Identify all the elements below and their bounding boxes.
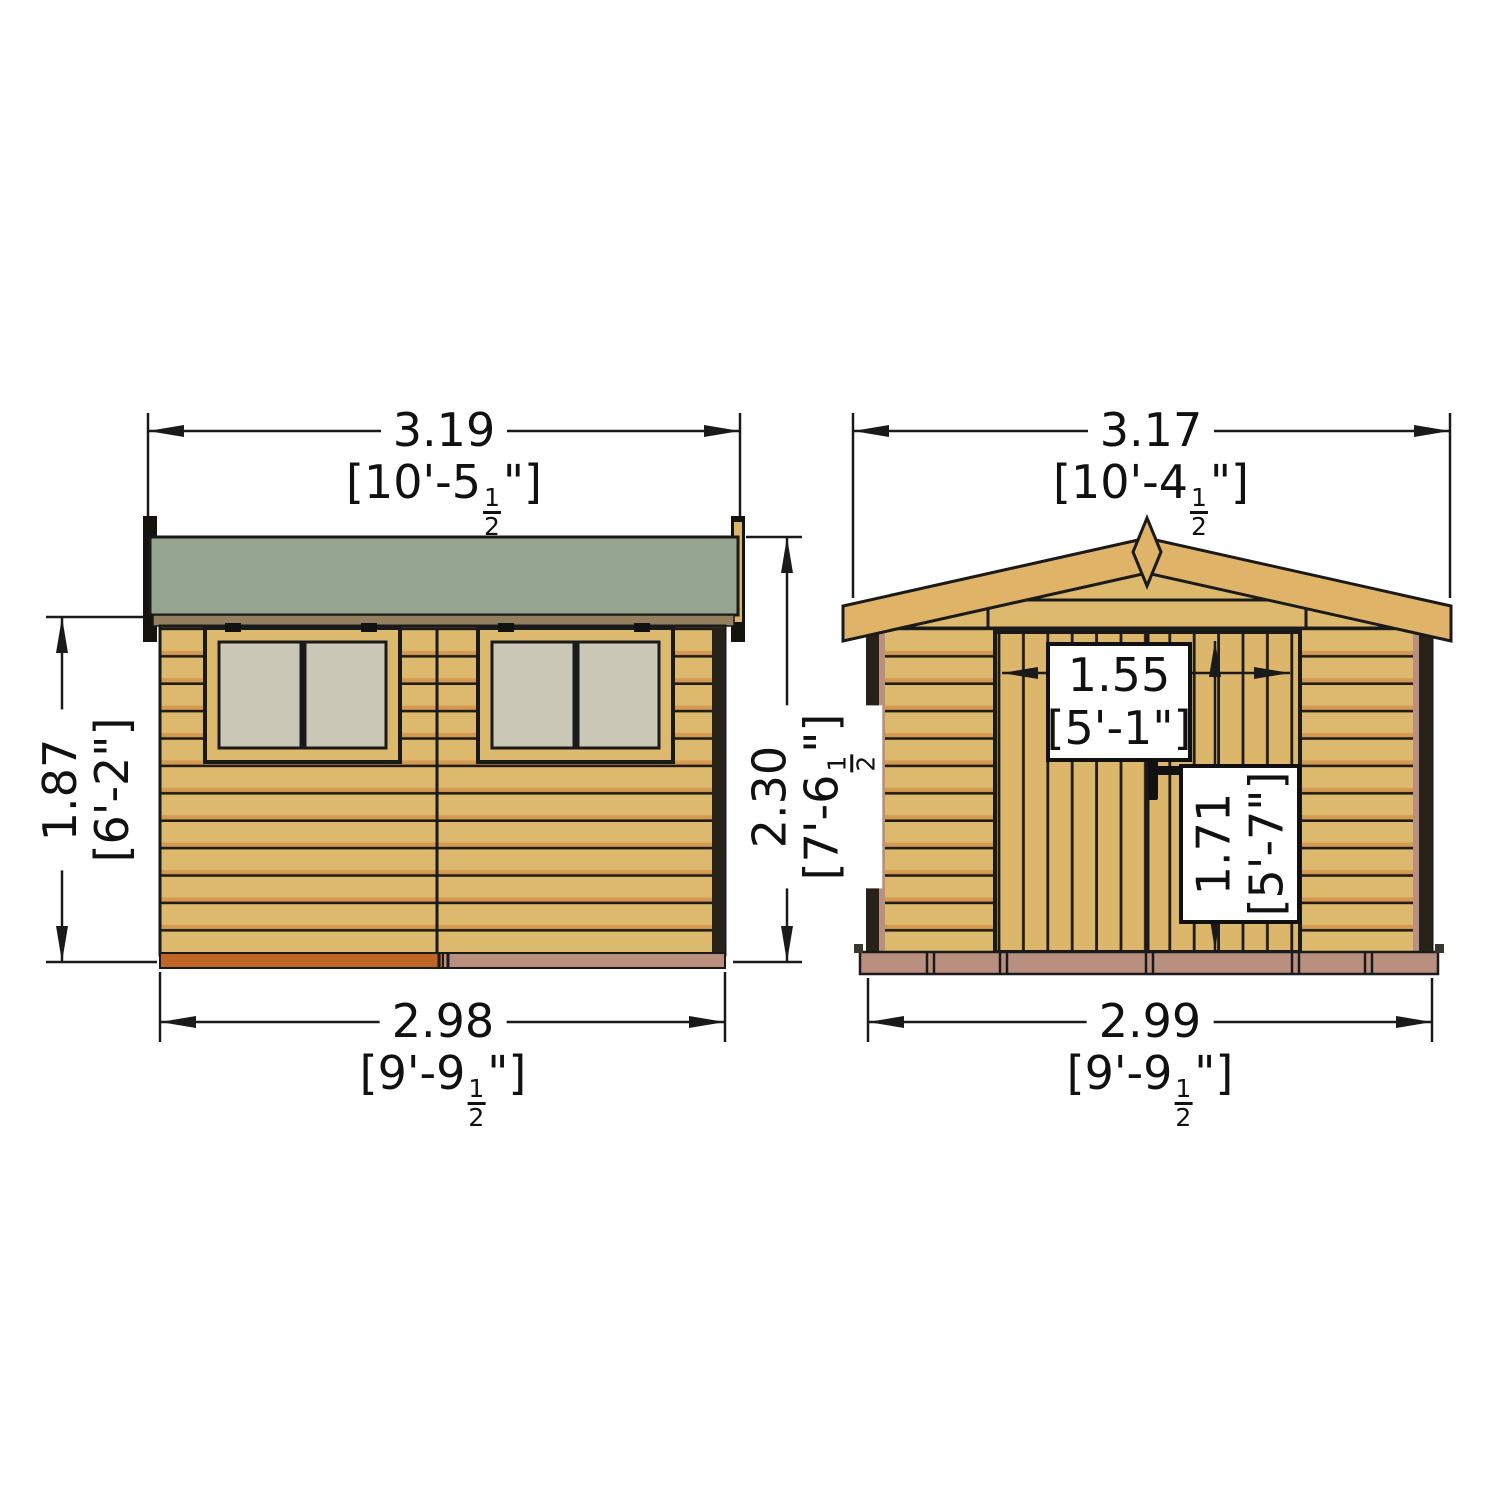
side-base: [160, 953, 725, 968]
metric-value: 3.17: [1088, 405, 1214, 455]
imperial-value: [5'-7"]: [1239, 772, 1293, 917]
metric-value: 2.30: [744, 714, 794, 881]
fraction: 12: [1174, 1076, 1192, 1132]
imperial-value: [5'-1"]: [1047, 701, 1192, 755]
label-side-base-width: 2.98 [9'-912"]: [360, 996, 527, 1132]
label-eaves-height: 1.87 [6'-2"]: [33, 710, 141, 871]
imperial-pre: [7'-6: [794, 775, 848, 881]
label-door-height: 1.71 [5'-7"]: [1179, 764, 1301, 924]
imperial-post: "]: [503, 455, 542, 509]
imperial-value: [9'-912"]: [1067, 1046, 1234, 1132]
label-door-width: 1.55 [5'-1"]: [1046, 642, 1192, 762]
metric-value: 1.87: [35, 718, 85, 863]
imperial-value: [10'-412"]: [1053, 455, 1249, 541]
imperial-pre: [10'-5: [346, 455, 481, 509]
roof-felt: [150, 537, 738, 615]
imperial-value: [7'-612"]: [794, 714, 880, 881]
imperial-pre: [5'-7"]: [1239, 772, 1293, 917]
metric-value: 2.99: [1087, 996, 1213, 1046]
imperial-post: "]: [487, 1046, 526, 1100]
corner-strip-right: [1413, 632, 1419, 953]
corner-trim-right: [1419, 630, 1432, 953]
fraction: 12: [467, 1076, 485, 1132]
imperial-value: [9'-912"]: [360, 1046, 527, 1132]
imperial-pre: [10'-4: [1053, 455, 1188, 509]
imperial-pre: [5'-1"]: [1047, 701, 1192, 755]
metric-value: 3.19: [381, 405, 507, 455]
imperial-value: [10'-512"]: [346, 455, 542, 541]
imperial-post: "]: [1210, 455, 1249, 509]
metric-value: 1.71: [1187, 772, 1239, 917]
window-hinge-icon: [498, 623, 514, 632]
imperial-pre: [9'-9: [360, 1046, 466, 1100]
window-hinge-icon: [225, 623, 241, 632]
imperial-post: "]: [794, 714, 848, 753]
fraction: 12: [824, 755, 880, 773]
imperial-value: [6'-2"]: [85, 718, 139, 863]
fraction: 12: [1190, 485, 1208, 541]
window-hinge-icon: [634, 623, 650, 632]
metric-value: 1.55: [1047, 649, 1192, 701]
label-front-base-width: 2.99 [9'-912"]: [1067, 996, 1234, 1132]
window-left: [205, 623, 400, 762]
corner-trim-right: [712, 628, 725, 955]
label-ridge-height: 2.30 [7'-612"]: [742, 706, 882, 889]
shed-elevation-diagram: 3.19 [10'-512"] 3.17 [10'-412"] 2.98 [9'…: [0, 0, 1500, 1500]
imperial-post: "]: [1194, 1046, 1233, 1100]
window-right: [478, 623, 673, 762]
imperial-pre: [6'-2"]: [85, 718, 139, 863]
side-elevation: [143, 516, 745, 968]
window-hinge-icon: [361, 623, 377, 632]
imperial-pre: [9'-9: [1067, 1046, 1173, 1100]
label-side-roof-width: 3.19 [10'-512"]: [346, 405, 542, 541]
metric-value: 2.98: [380, 996, 506, 1046]
label-front-roof-width: 3.17 [10'-412"]: [1053, 405, 1249, 541]
fraction: 12: [483, 485, 501, 541]
